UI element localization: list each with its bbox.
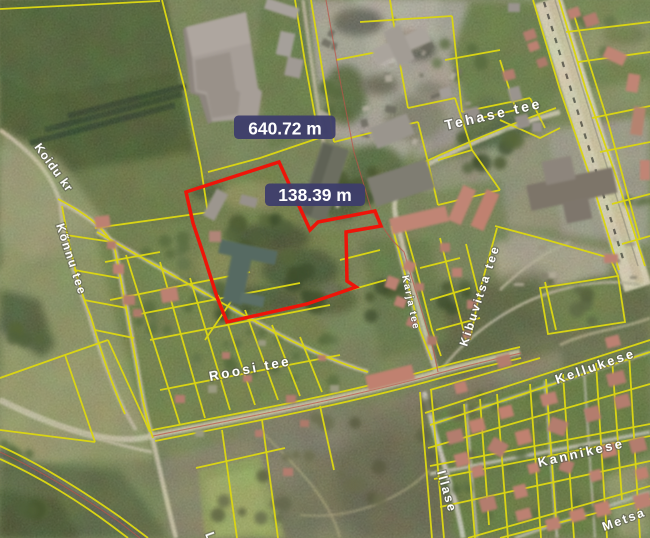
svg-text:138.39 m: 138.39 m — [278, 185, 352, 205]
svg-text:640.72 m: 640.72 m — [248, 119, 322, 139]
